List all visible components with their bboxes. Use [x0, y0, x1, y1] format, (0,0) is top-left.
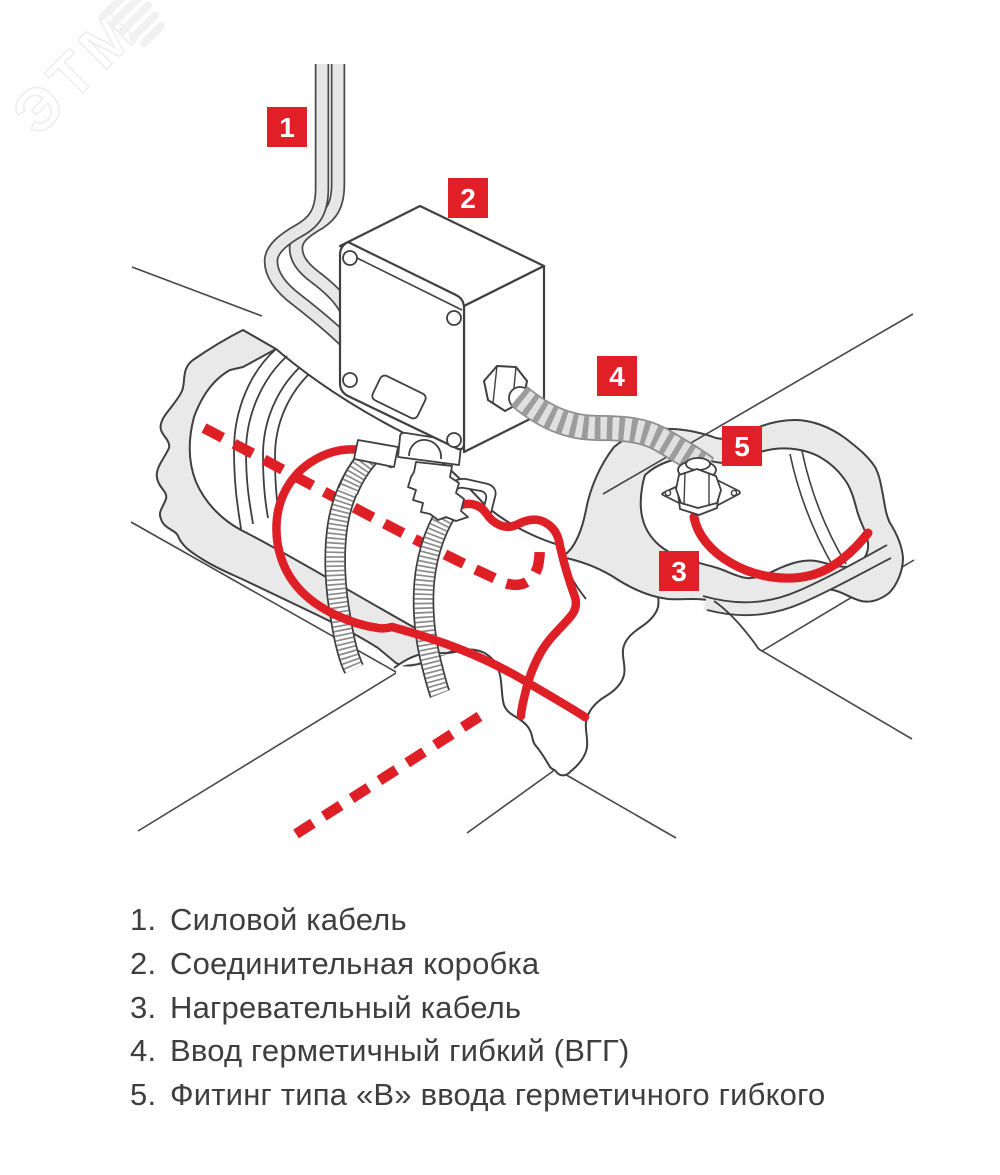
svg-text:2.: 2.: [130, 946, 156, 981]
svg-text:Ввод герметичный гибкий (ВГГ): Ввод герметичный гибкий (ВГГ): [170, 1033, 630, 1068]
svg-text:3.: 3.: [130, 990, 156, 1025]
svg-text:Фитинг типа «В» ввода герметич: Фитинг типа «В» ввода герметичного гибко…: [170, 1077, 825, 1112]
svg-text:4.: 4.: [130, 1033, 156, 1068]
svg-text:Нагревательный кабель: Нагревательный кабель: [170, 990, 521, 1025]
svg-text:Силовой кабель: Силовой кабель: [170, 902, 407, 937]
svg-text:5: 5: [734, 431, 750, 462]
svg-text:3: 3: [671, 556, 687, 587]
svg-text:5.: 5.: [130, 1077, 156, 1112]
svg-text:2: 2: [460, 183, 476, 214]
svg-text:1.: 1.: [130, 902, 156, 937]
svg-text:4: 4: [609, 361, 625, 392]
svg-text:Соединительная коробка: Соединительная коробка: [170, 946, 540, 981]
svg-text:1: 1: [279, 112, 295, 143]
